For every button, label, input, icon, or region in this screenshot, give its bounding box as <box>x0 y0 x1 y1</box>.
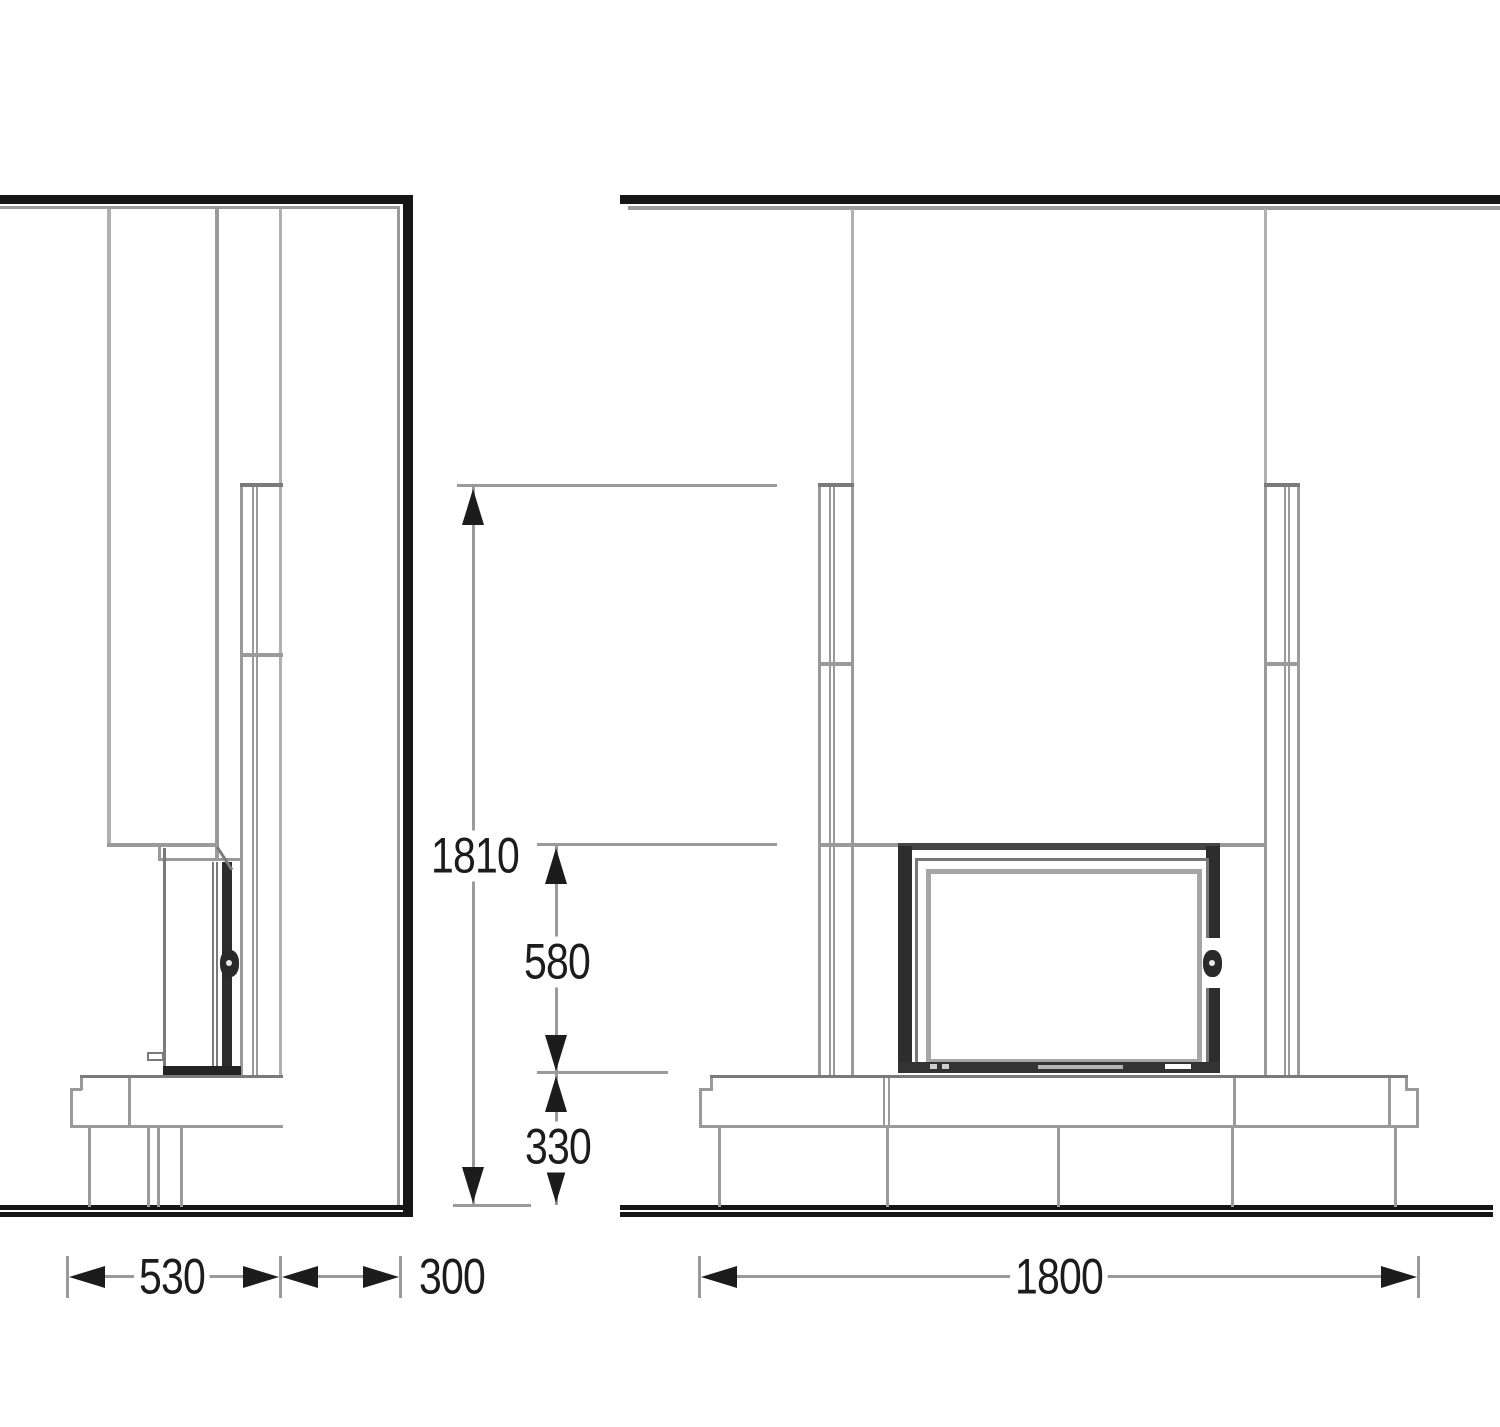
insert-glass <box>926 869 1202 1064</box>
arrow-right-icon <box>1381 1266 1417 1288</box>
sill-notch <box>1165 1064 1191 1069</box>
dimension-label-opening-height: 580 <box>519 937 595 988</box>
column-left-line <box>829 487 831 1077</box>
column-left-joint <box>818 662 854 666</box>
bench-top-edge <box>80 1075 283 1078</box>
pilaster-cap-edge <box>240 483 283 487</box>
floor-line-upper <box>0 1205 413 1210</box>
bench-joint-line <box>1233 1078 1236 1125</box>
hood-left-edge <box>851 209 854 486</box>
column-left-cap <box>818 483 854 487</box>
plinth-joint-line <box>1057 1128 1060 1207</box>
floor-line-lower <box>0 1212 413 1217</box>
arrow-left-icon <box>701 1266 737 1288</box>
column-right-inner-edge <box>1264 487 1267 1077</box>
floor-line-lower <box>620 1212 1493 1217</box>
pilaster-back-edge <box>240 487 243 1077</box>
hood-bottom-edge <box>107 843 219 847</box>
dimension-label-bench-depth: 530 <box>134 1252 210 1303</box>
arrow-left-icon <box>69 1266 105 1288</box>
extension-line <box>457 484 777 487</box>
column-right-outer-edge <box>1297 487 1300 1077</box>
bench-top-edge <box>710 1075 1408 1078</box>
bench-left-edge <box>699 1090 702 1127</box>
arrow-down-icon <box>462 1167 484 1203</box>
dimension-label-total-height: 1810 <box>426 831 524 882</box>
arrow-down-icon <box>545 1035 567 1071</box>
tick-mark <box>1417 1256 1420 1298</box>
handle-pivot-icon <box>226 960 232 966</box>
dimension-label-base-height: 330 <box>520 1122 596 1173</box>
sill-vent-mark <box>930 1064 937 1069</box>
insert-top-frame <box>898 843 1220 850</box>
insert-left-frame <box>898 846 912 1072</box>
arrow-left-icon <box>282 1266 318 1288</box>
wall-line <box>403 195 413 1217</box>
ceiling-line <box>0 195 413 204</box>
column-left-line <box>833 487 835 1077</box>
bench-front-edge <box>70 1090 73 1127</box>
door-sill <box>163 1066 241 1075</box>
bench-joint-line <box>888 1078 890 1125</box>
arrow-right-icon <box>243 1266 279 1288</box>
pilaster-inner-line <box>252 487 254 1077</box>
pilaster-inner-line <box>256 487 258 1077</box>
dimension-line <box>318 1275 363 1278</box>
plinth-front-edge <box>88 1128 91 1207</box>
technical-drawing-canvas: 1810 580 330 530 <box>0 0 1500 1427</box>
plinth-right-edge <box>1394 1128 1397 1207</box>
extension-line <box>537 843 777 846</box>
plinth-joint-line <box>157 1127 160 1207</box>
bench-right-edge <box>1416 1090 1419 1127</box>
dimension-label-bench-width: 1800 <box>1010 1252 1108 1303</box>
arrow-right-icon <box>363 1266 399 1288</box>
sill-vent-mark <box>942 1064 949 1069</box>
wall-inner-line <box>397 206 400 1207</box>
column-right-cap <box>1264 483 1300 487</box>
bench-joint-line <box>1388 1078 1391 1125</box>
ceiling-line <box>620 195 1500 204</box>
door-lining-edge <box>163 848 166 1068</box>
door-face-line <box>216 862 218 1068</box>
bench-joint-line <box>128 1078 131 1125</box>
hood-right-edge <box>1264 209 1267 486</box>
ceiling-inner-line <box>0 206 400 209</box>
tick-mark <box>399 1256 402 1298</box>
arrow-up-icon <box>462 489 484 525</box>
arrow-up-icon <box>545 1076 567 1112</box>
column-left-inner-edge <box>851 487 854 1077</box>
ceiling-inner-line <box>628 206 1500 210</box>
door-face-line <box>212 862 214 1068</box>
breast-front-edge <box>215 209 219 860</box>
plinth-left-edge <box>718 1128 721 1207</box>
arrow-up-icon <box>545 848 567 884</box>
column-right-joint <box>1264 662 1300 666</box>
dimension-label-column-depth: 300 <box>414 1252 490 1303</box>
opening-top-edge <box>158 858 242 861</box>
door-handle-icon <box>220 950 239 977</box>
bench-joint-line <box>883 1078 885 1125</box>
pilaster-joint-line <box>240 653 283 657</box>
pilaster-front-edge <box>279 209 282 1077</box>
extension-line <box>453 1204 531 1207</box>
column-right-line <box>1284 487 1286 1077</box>
insert-handle-icon <box>1203 950 1222 977</box>
ash-lip <box>147 1052 164 1061</box>
handle-pivot-icon <box>1209 960 1215 966</box>
plinth-joint-line <box>180 1128 183 1207</box>
sill-vent-mark <box>1038 1065 1123 1069</box>
plinth-joint-line <box>886 1128 889 1207</box>
plinth-joint-line <box>147 1127 150 1207</box>
bench-bottom-edge <box>70 1125 283 1128</box>
column-left-outer-edge <box>818 487 821 1077</box>
plinth-joint-line <box>1231 1128 1234 1207</box>
hood-front-edge <box>107 209 111 845</box>
column-right-line <box>1288 487 1290 1077</box>
